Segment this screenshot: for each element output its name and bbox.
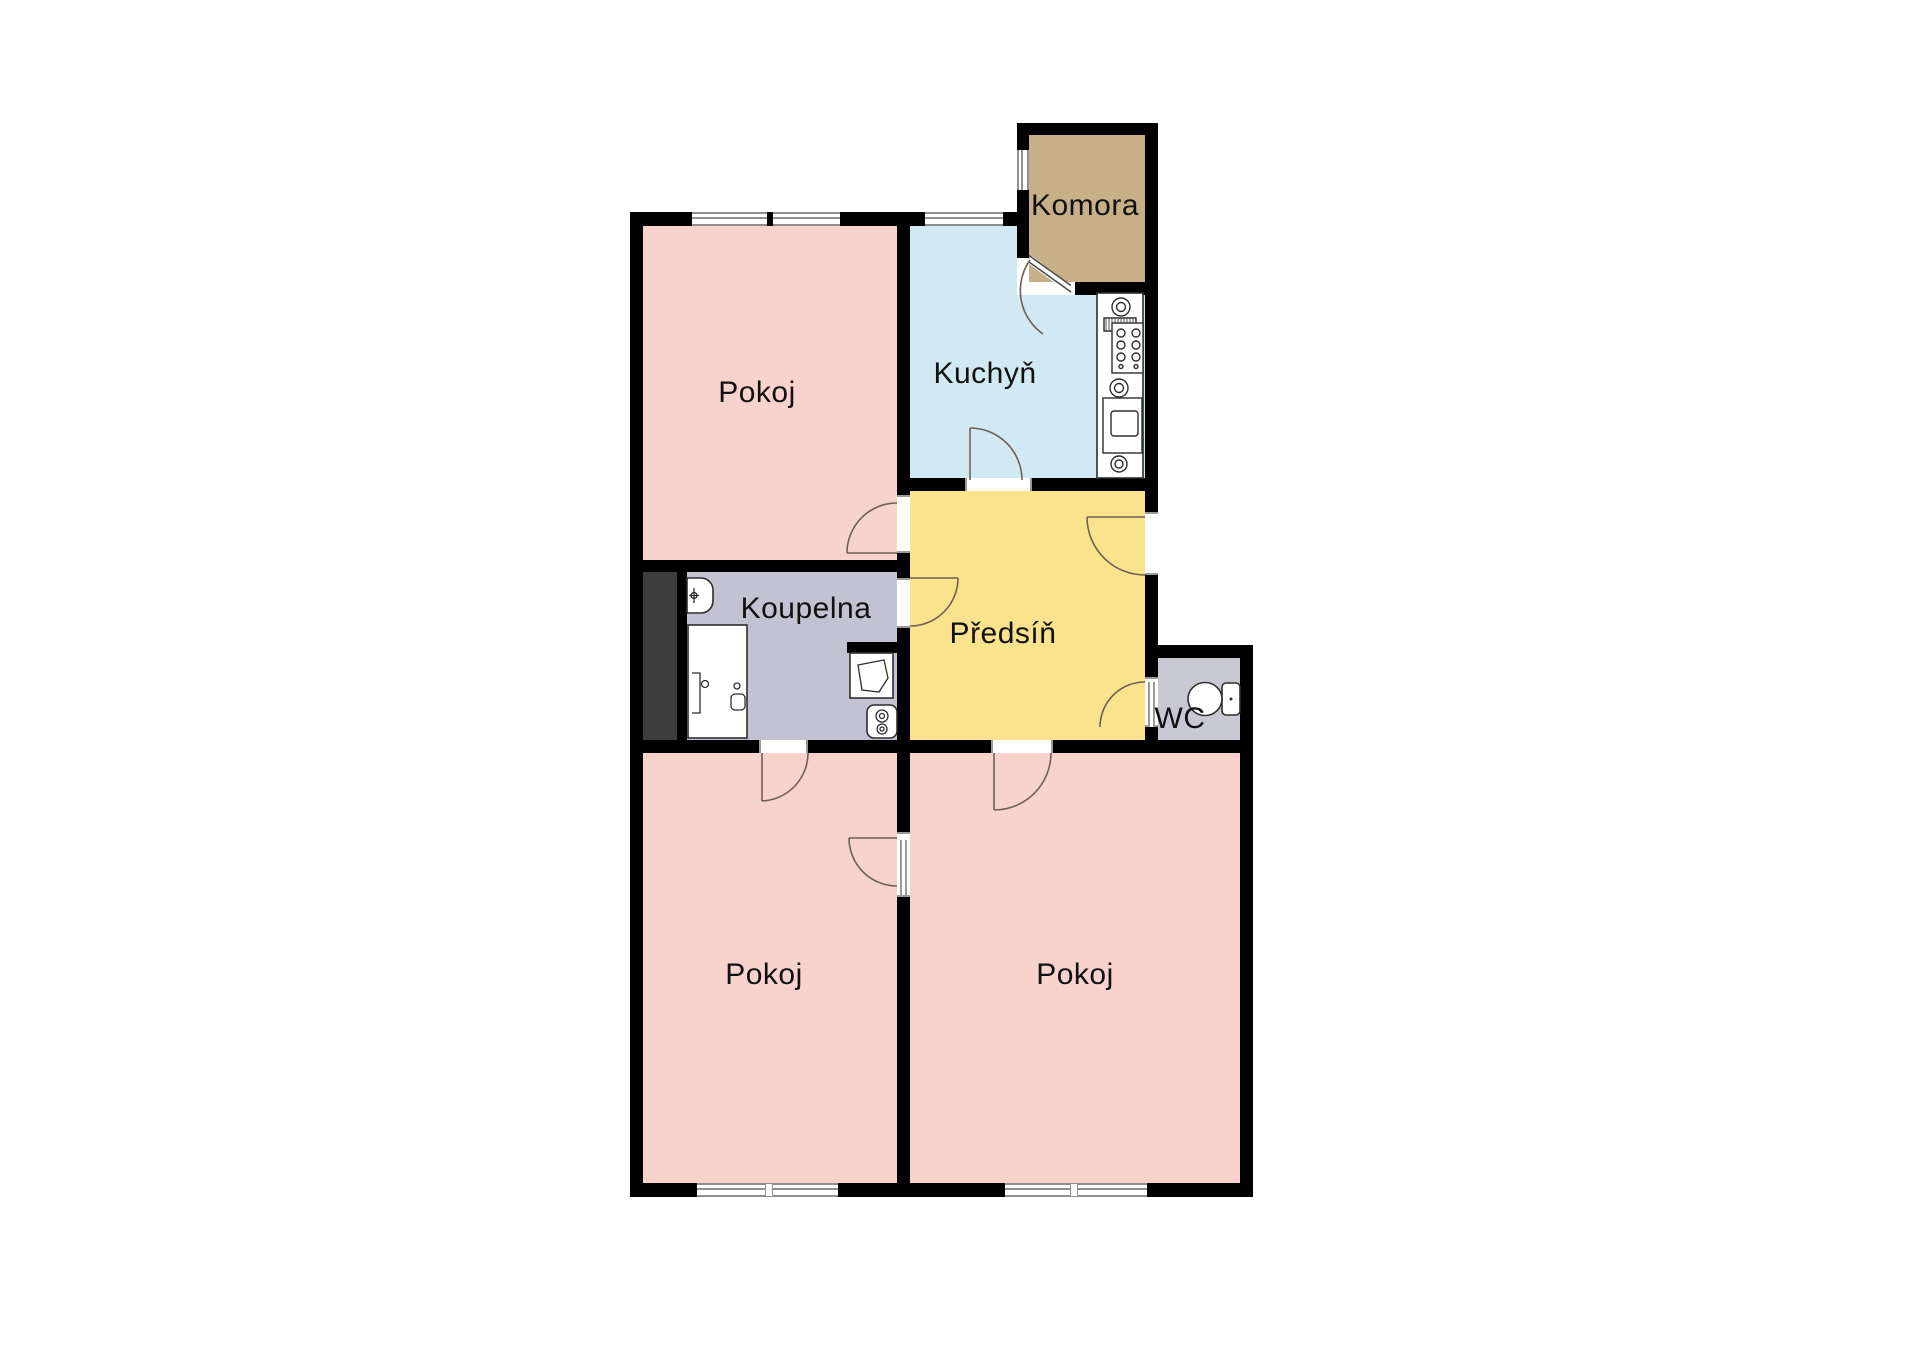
room-label-pokoj-bottom-left: Pokoj [725,958,803,992]
room-label-pokoj-top: Pokoj [718,376,796,410]
door-swing-koupelna-pokoj [762,753,808,801]
bathroom-sink-icon [687,578,713,613]
fixtures-layer [0,0,1920,1358]
room-label-wc: WC [1155,702,1206,736]
room-label-predsin: Předsíň [950,617,1057,651]
floor-plan-canvas: Pokoj Kuchyň Komora Koupelna Předsíň WC … [0,0,1920,1358]
room-label-koupelna: Koupelna [741,592,872,626]
bathtub-icon [688,625,747,738]
door-swing-pokoj-pokoj [849,838,897,886]
door-swing-predsin-pokoj [994,753,1051,810]
door-swing-entrance [1087,517,1145,575]
room-label-komora: Komora [1031,189,1139,223]
door-swing-kuchyn [970,428,1022,480]
door-swing-wc [1100,682,1145,727]
door-swing-pokoj-predsin [847,503,897,553]
door-swing-komora [1020,256,1071,335]
room-label-pokoj-bottom-right: Pokoj [1036,958,1114,992]
water-heater-icon [867,705,897,738]
room-label-kuchyn: Kuchyň [933,357,1036,391]
washing-machine-icon [850,653,893,698]
